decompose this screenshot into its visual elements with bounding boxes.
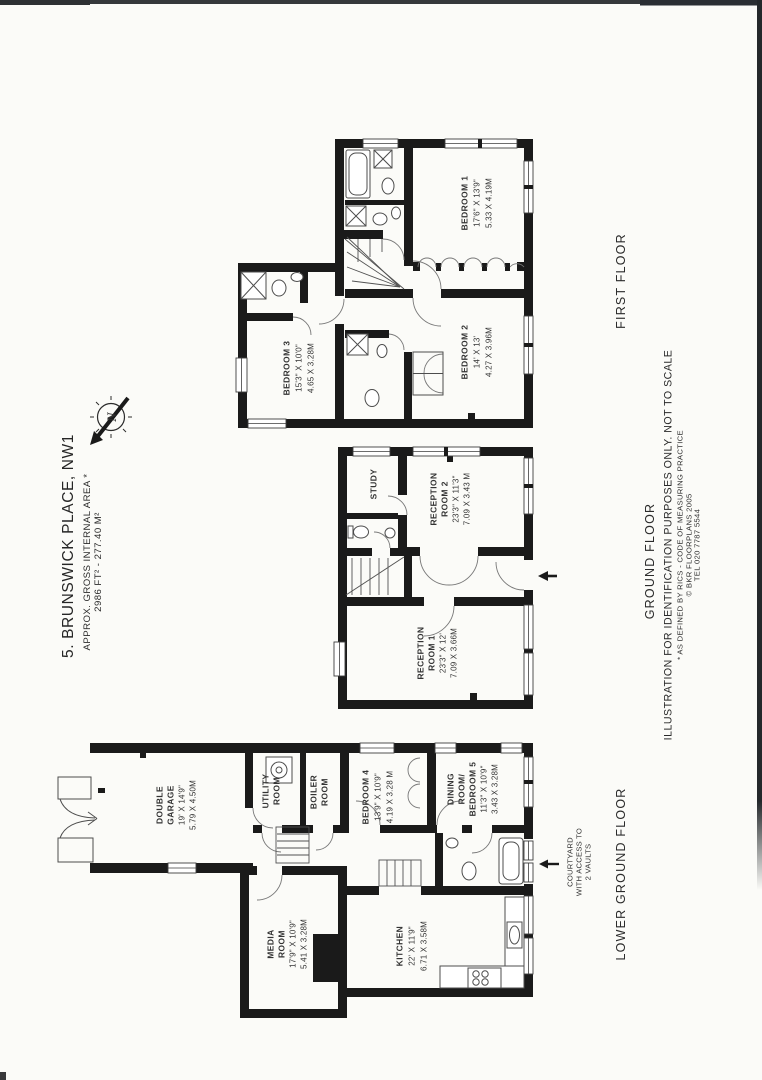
page-subtitle: APPROX. GROSS INTERNAL AREA * <box>82 474 93 651</box>
dining-label-1: DINING <box>446 773 456 805</box>
garage-dims-metric: 5.79 X 4.50M <box>189 780 198 830</box>
disclaimer-text: ILLUSTRATION FOR IDENTIFICATION PURPOSES… <box>662 350 674 741</box>
reception2-dims-metric: 7.09 X 3.43 M <box>463 473 472 526</box>
garage-label-2: GARAGE <box>166 785 176 824</box>
bedroom3-dims-metric: 4.65 X 3.28M <box>307 343 316 393</box>
garage-dims-imperial: 19' X 14'9" <box>178 785 187 825</box>
reception2-label-2: ROOM 2 <box>440 481 450 517</box>
floorplan-page: BEDROOM 1 17'6" X 13'9" 5.33 X 4.19M BED… <box>0 0 762 1080</box>
bedroom3-dims-imperial: 15'3" X 10'0" <box>295 344 304 392</box>
telephone-text: TEL 020 7787 5544 <box>692 508 701 581</box>
dining-label-3: BEDROOM 5 <box>468 762 478 817</box>
courtyard-label-3: 2 VAULTS <box>583 844 592 881</box>
bedroom1-dims-imperial: 17'6" X 13'9" <box>473 179 482 227</box>
kitchen-label: KITCHEN <box>395 926 405 966</box>
bedroom3-label: BEDROOM 3 <box>282 341 292 396</box>
courtyard-label-1: COURTYARD <box>565 837 574 887</box>
bedroom2-dims-metric: 4.27 X 3.96M <box>485 327 494 377</box>
media-dims-metric: 5.41 X 3.28M <box>300 919 309 969</box>
bedroom4-label: BEDROOM 4 <box>361 770 371 825</box>
lower-ground-floor-label: LOWER GROUND FLOOR <box>614 788 628 961</box>
floorplan-canvas: BEDROOM 1 17'6" X 13'9" 5.33 X 4.19M BED… <box>0 0 762 1080</box>
reception2-dims-imperial: 23'3" X 11'3" <box>452 475 461 522</box>
kitchen-dims-metric: 6.71 X 3.58M <box>420 921 429 971</box>
media-label-1: MEDIA <box>266 929 276 958</box>
utility-label-2: ROOM <box>272 777 282 805</box>
page-area: 2986 FT² - 277.40 M² <box>93 512 104 612</box>
bedroom1-label: BEDROOM 1 <box>460 176 470 231</box>
bedroom4-dims-metric: 4.19 X 3.28 M <box>386 771 395 824</box>
boiler-label-2: ROOM <box>320 778 330 806</box>
reception1-dims-metric: 7.09 X 3.66M <box>450 628 459 678</box>
garage-label-1: DOUBLE <box>155 786 165 824</box>
courtyard-label-2: WITH ACCESS TO <box>574 828 583 896</box>
media-label-2: ROOM <box>277 930 287 958</box>
reception1-label-1: RECEPTION <box>416 627 426 680</box>
dining-dims-imperial: 11'3" X 10'9" <box>480 765 489 812</box>
reception2-label-1: RECEPTION <box>429 473 439 526</box>
dining-label-2: ROOM/ <box>457 773 467 804</box>
reception1-dims-imperial: 23'3" X 12' <box>439 633 448 673</box>
utility-label-1: UTILITY <box>261 774 271 809</box>
dining-dims-metric: 3.43 X 3.28M <box>491 764 500 814</box>
boiler-label-1: BOILER <box>309 775 319 809</box>
study-label: STUDY <box>369 469 379 500</box>
bedroom2-label: BEDROOM 2 <box>460 325 470 380</box>
kitchen-dims-imperial: 22' X 11'9" <box>408 926 417 966</box>
compass-north-letter: N <box>104 412 119 423</box>
media-dims-imperial: 17'9" X 10'9" <box>289 920 298 968</box>
first-floor-label: FIRST FLOOR <box>614 233 628 329</box>
ground-floor-label: GROUND FLOOR <box>643 503 657 620</box>
bedroom1-dims-metric: 5.33 X 4.19M <box>485 178 494 228</box>
page-title: 5. BRUNSWICK PLACE, NW1 <box>60 434 77 658</box>
rics-note-text: * AS DEFINED BY RICS - CODE OF MEASURING… <box>675 430 684 660</box>
bedroom4-dims-imperial: 13'9" X 10'9" <box>374 773 383 821</box>
reception1-label-2: ROOM 1 <box>427 635 437 671</box>
bedroom2-dims-imperial: 14' X 13' <box>473 336 482 369</box>
